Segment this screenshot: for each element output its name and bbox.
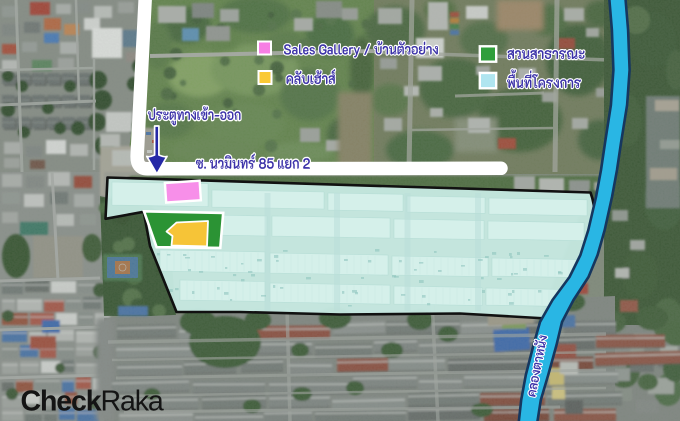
svg-text:CheckRaka: CheckRaka — [21, 386, 164, 418]
